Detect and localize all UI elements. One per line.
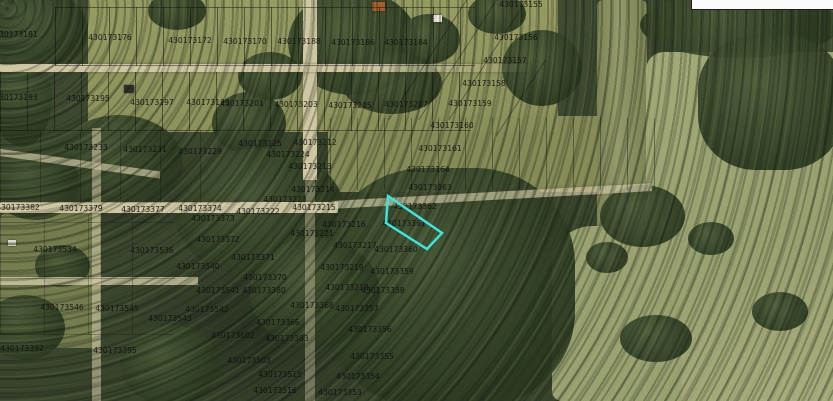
highlighted-parcel-polygon[interactable] <box>386 196 442 249</box>
aerial-parcel-map-canvas[interactable]: 4301731814301731764301731724301731704301… <box>0 0 833 401</box>
highlight-layer <box>0 0 833 401</box>
top-right-white-box <box>691 0 833 10</box>
